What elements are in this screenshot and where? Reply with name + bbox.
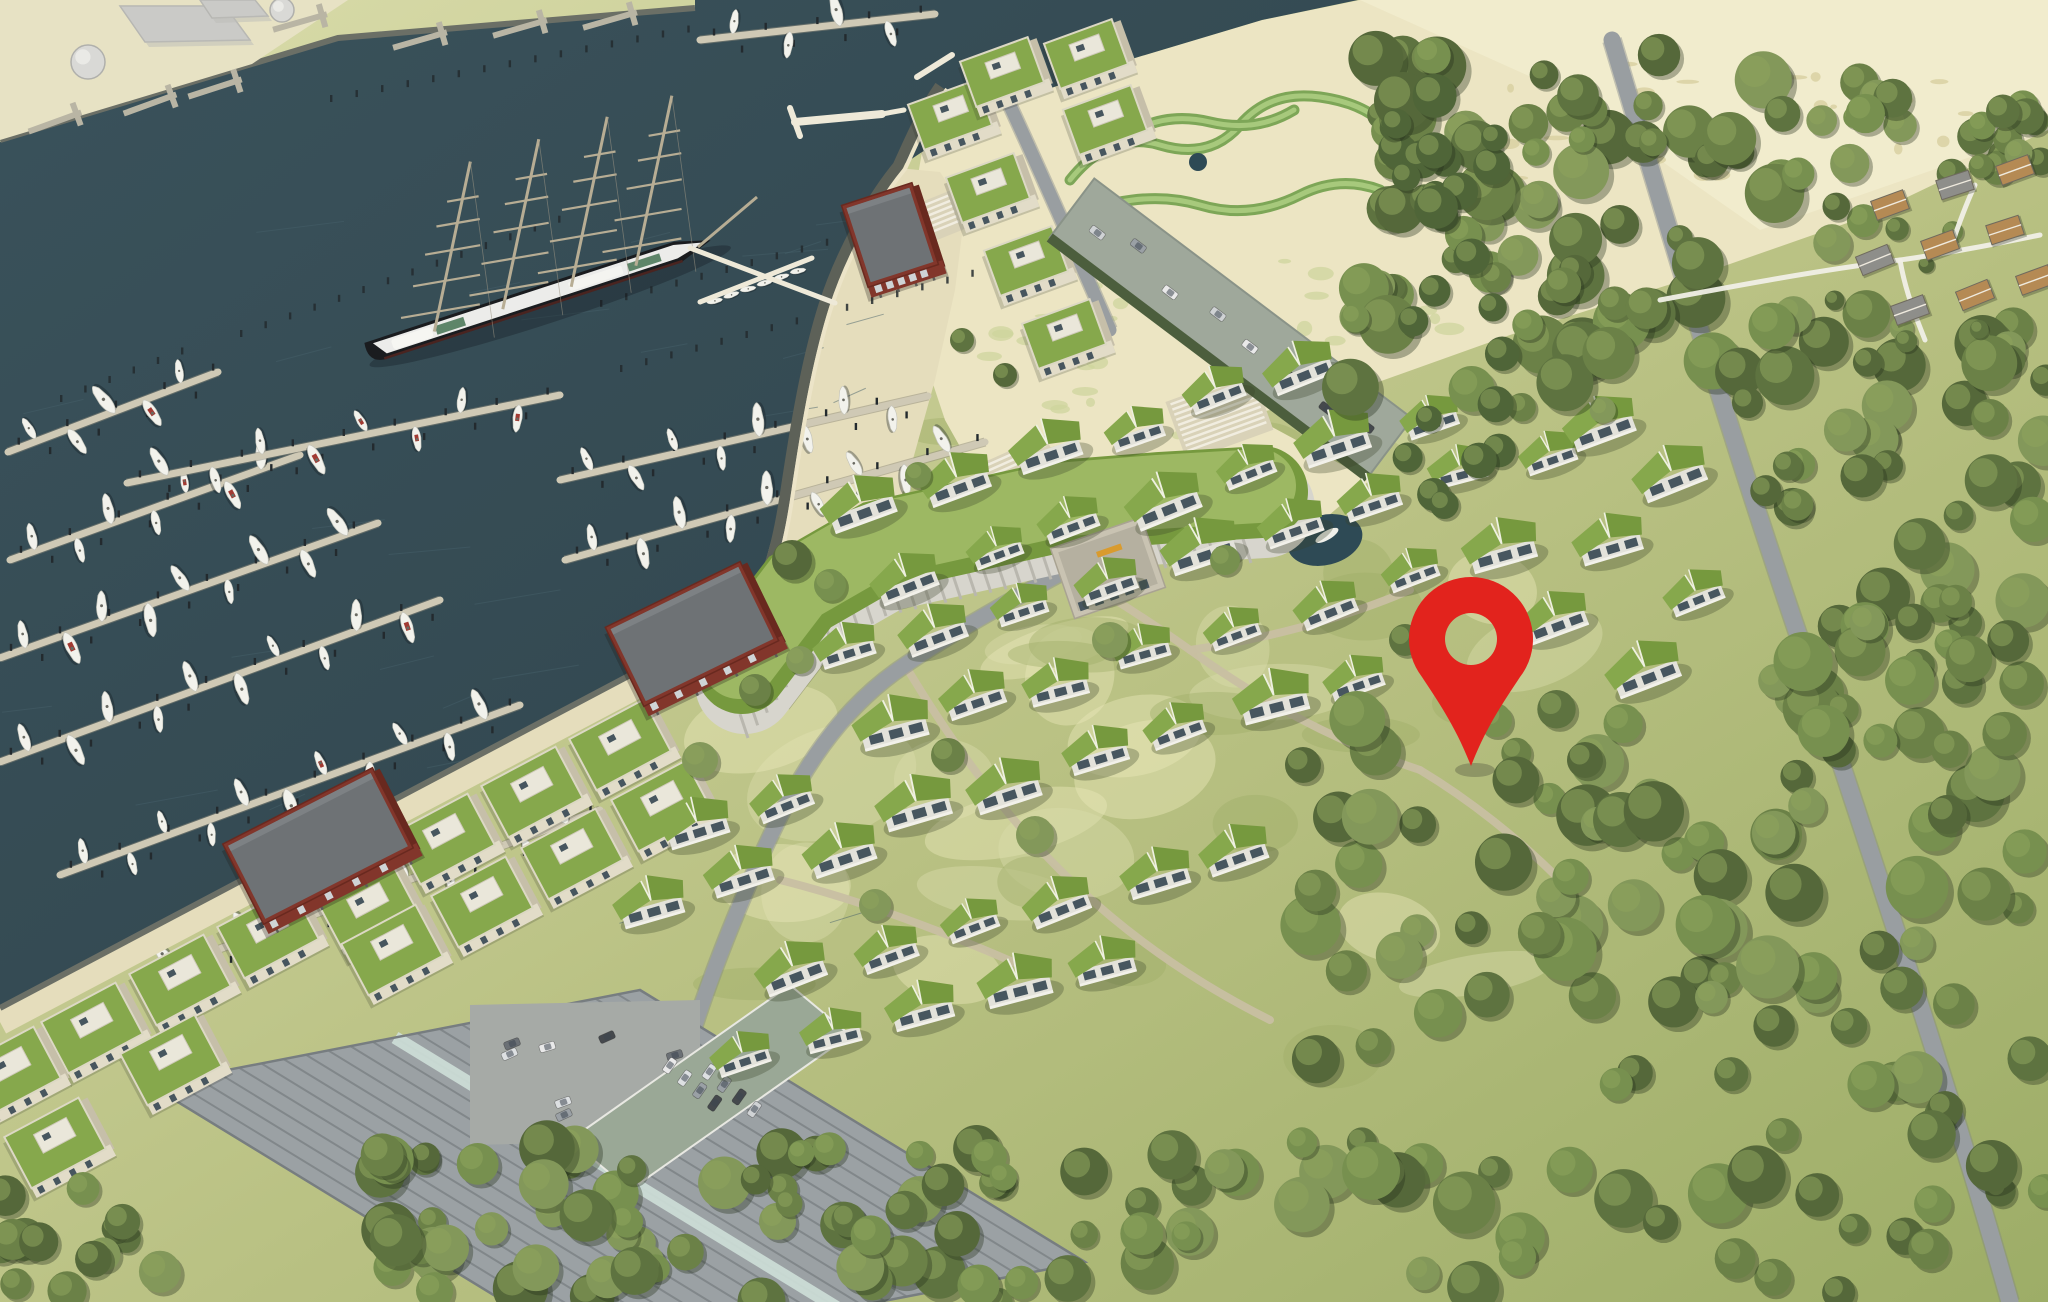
site-plan-rendering: [0, 0, 2048, 1302]
resort-aerial-map: [0, 0, 2048, 1302]
